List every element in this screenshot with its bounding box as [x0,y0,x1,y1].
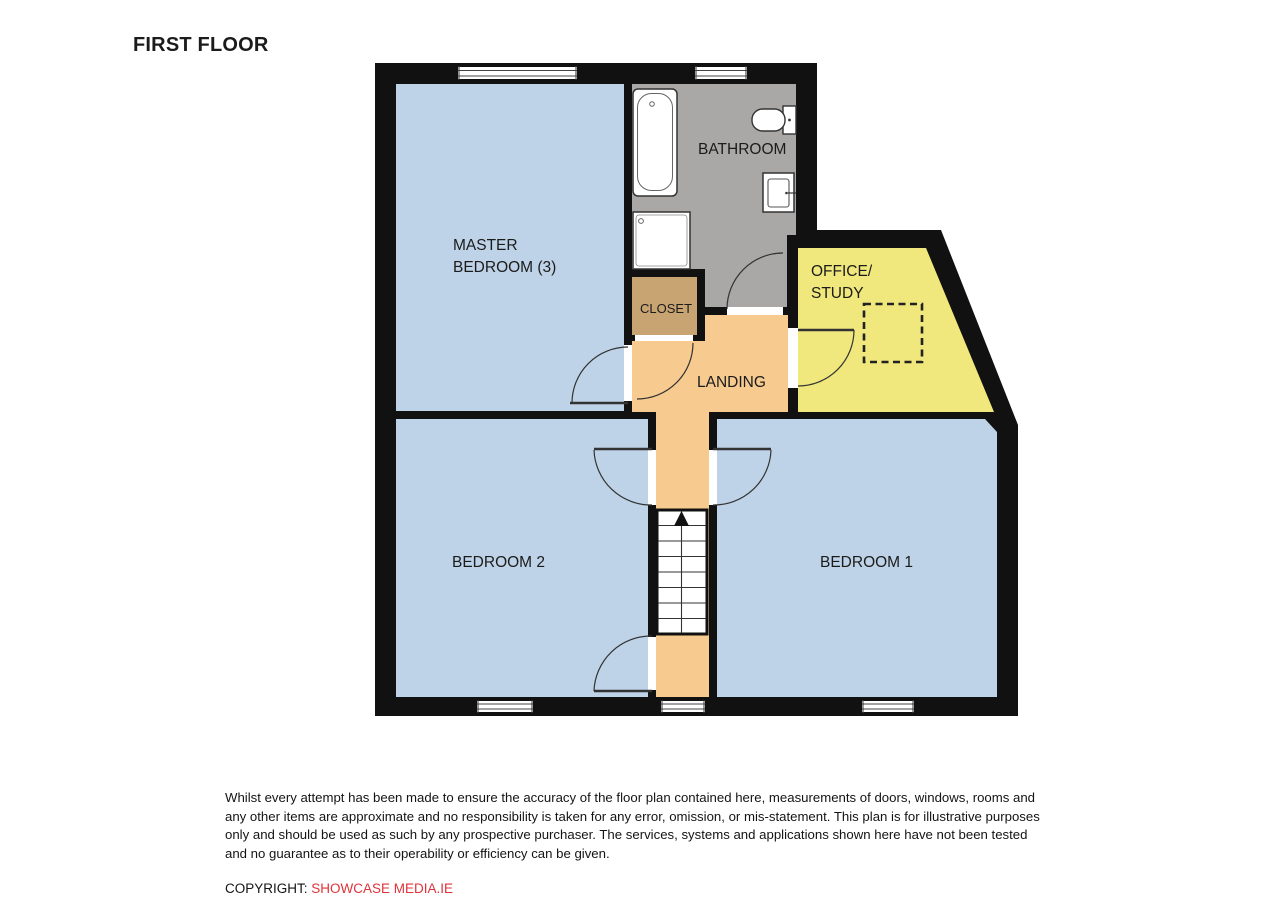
bathtub-icon [633,89,677,196]
floor-plan-drawing: MASTER BEDROOM (3) BATHROOM CLOSET OFFIC… [0,0,1280,905]
window-bottom-bedroom1 [862,700,914,713]
label-master-bedroom-line2: BEDROOM (3) [453,259,556,276]
label-bathroom: BATHROOM [698,141,786,158]
doorway-master [624,345,632,401]
doorway-bedroom2 [648,450,656,505]
doorway-corridor-bottom [648,637,656,690]
copyright-label: COPYRIGHT: [225,881,308,896]
copyright-line: COPYRIGHT: SHOWCASE MEDIA.IE [225,881,453,896]
shower-icon [633,212,690,269]
window-top-bathroom [695,66,747,80]
label-bedroom-1: BEDROOM 1 [820,554,913,571]
toilet-icon [752,106,796,134]
copyright-company: SHOWCASE MEDIA.IE [311,881,453,896]
label-bedroom-2: BEDROOM 2 [452,554,545,571]
window-bottom-bedroom2 [477,700,533,713]
label-master-bedroom-line1: MASTER [453,237,518,254]
label-office-line2: STUDY [811,285,864,302]
disclaimer-text: Whilst every attempt has been made to en… [225,789,1049,863]
doorway-bathroom [727,307,783,315]
doorway-office [788,328,798,388]
doorway-closet [635,335,693,341]
staircase [657,510,707,634]
window-bottom-corridor [661,700,705,713]
window-top-master [458,66,577,80]
floor-plan-page: FIRST FLOOR [0,0,1280,905]
label-landing: LANDING [697,374,766,391]
label-office-line1: OFFICE/ [811,263,873,280]
sink-icon [763,173,796,212]
doorway-bedroom1 [709,450,717,505]
label-closet: CLOSET [640,301,692,316]
